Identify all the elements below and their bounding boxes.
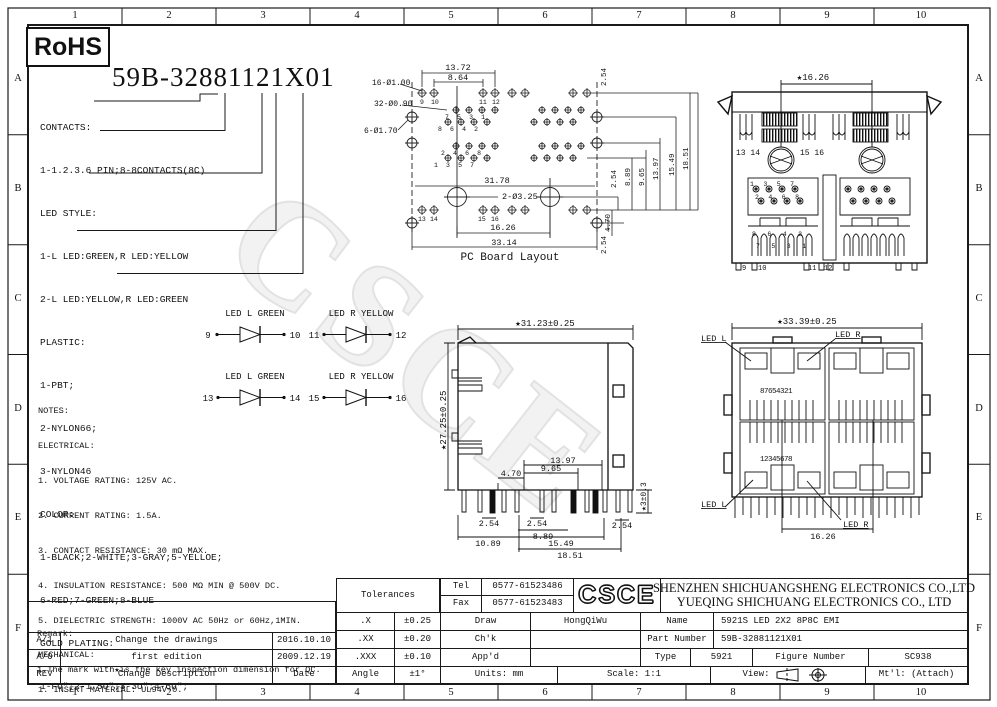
tol-x-label: .X (336, 612, 395, 631)
tel-label: Tel (440, 578, 482, 596)
svg-text:2.54: 2.54 (611, 169, 619, 188)
bottom-view-drawing: ★16.26 13 14 15 16 1 3 5 7 2 4 6 8 8 6 4… (700, 60, 970, 290)
svg-text:33.14: 33.14 (491, 238, 517, 248)
svg-text:LED L GREEN: LED L GREEN (225, 309, 284, 319)
svg-text:6-Ø1.70: 6-Ø1.70 (364, 127, 398, 136)
electrical-label: ELECTRICAL: (38, 441, 353, 453)
pcb-layout-drawing: 13.72 8.64 16-Ø1.00 32-Ø0.90 6-Ø1.70 31.… (360, 58, 750, 270)
tol-xxx-label: .XXX (336, 648, 395, 667)
tel-value: 0577-61523486 (481, 578, 574, 596)
svg-text:LED R YELLOW: LED R YELLOW (329, 372, 394, 382)
svg-text:★31.23±0.25: ★31.23±0.25 (515, 319, 574, 329)
svg-text:8 6 4 2: 8 6 4 2 (752, 231, 802, 238)
front-view-drawing: ★33.39±0.25 LED L LED R 87654321 1234567… (695, 315, 975, 565)
csce-logo: CSCE (573, 578, 661, 613)
tol-xx-value: ±0.20 (394, 630, 441, 649)
rev-header-desc: Change Description (60, 666, 273, 684)
svg-text:31.78: 31.78 (484, 176, 510, 186)
check-value (530, 630, 641, 649)
company-block: SHENZHEN SHICHUANGSHENG ELECTRONICS CO.,… (660, 578, 968, 613)
rev-id-2: A/0 (28, 649, 61, 667)
svg-text:★27.25±0.25: ★27.25±0.25 (439, 391, 449, 450)
led-diagram-2: LED R YELLOW 11 12 (306, 303, 416, 349)
svg-text:15: 15 (478, 216, 486, 223)
rev-header-date: Date (272, 666, 336, 684)
svg-text:2.54: 2.54 (612, 521, 632, 531)
svg-text:87654321: 87654321 (760, 388, 793, 396)
rev-date-2: 2009.12.19 (272, 649, 336, 667)
note-line: 1. VOLTAGE RATING: 125V AC. (38, 476, 353, 488)
svg-text:32-Ø0.90: 32-Ø0.90 (374, 100, 413, 109)
svg-text:14: 14 (430, 216, 438, 223)
svg-text:11: 11 (479, 99, 487, 106)
svg-text:8.64: 8.64 (448, 73, 468, 83)
view-cell: View: (710, 666, 866, 684)
draw-label: Draw (440, 612, 531, 631)
fax-label: Fax (440, 595, 482, 613)
check-label: Ch'k (440, 630, 531, 649)
svg-text:16: 16 (491, 216, 499, 223)
svg-text:9: 9 (742, 265, 746, 273)
company-line-1: SHENZHEN SHICHUANGSHENG ELECTRONICS CO.,… (653, 582, 975, 595)
tol-xxx-value: ±0.10 (394, 648, 441, 667)
svg-text:9.65: 9.65 (541, 464, 561, 474)
tol-angle-value: ±1° (394, 666, 441, 684)
figure-number-value: SC938 (868, 648, 968, 667)
csce-logo-text: CSCE (578, 582, 655, 608)
svg-text:LED L: LED L (701, 334, 727, 344)
rev-id-1: A/1 (28, 632, 61, 650)
fax-value: 0577-61523483 (481, 595, 574, 613)
contacts-opt-1: 1-1.2.3.6 PIN;8-8CONTACTS(8C) (40, 164, 222, 178)
svg-text:2.54: 2.54 (527, 519, 547, 529)
svg-text:7 5 3 1: 7 5 3 1 (445, 114, 485, 121)
svg-text:★33.39±0.25: ★33.39±0.25 (777, 317, 836, 327)
svg-text:LED R: LED R (843, 520, 869, 530)
svg-text:16-Ø1.00: 16-Ø1.00 (372, 79, 411, 88)
material-cell: Mt'l: (Attach) (865, 666, 968, 684)
part-number-value: 59B-32881121X01 (713, 630, 968, 649)
note-line: 4. INSULATION RESISTANCE: 500 MΩ MIN @ 5… (38, 581, 353, 593)
svg-text:12345678: 12345678 (760, 456, 792, 464)
svg-text:1 3 5 7: 1 3 5 7 (750, 181, 794, 188)
rev-header-rev: REV (28, 666, 61, 684)
svg-text:10: 10 (431, 99, 439, 106)
tolerances-header: Tolerances (336, 578, 440, 613)
draw-value: HongQiWu (530, 612, 641, 631)
tol-angle-label: Angle (336, 666, 395, 684)
svg-text:16.26: 16.26 (490, 223, 516, 233)
svg-text:9.65: 9.65 (639, 167, 647, 186)
svg-text:LED R: LED R (835, 330, 861, 340)
tol-x-value: ±0.25 (394, 612, 441, 631)
svg-text:PC Board Layout: PC Board Layout (460, 252, 559, 264)
led-opt-1: 1-L LED:GREEN,R LED:YELLOW (40, 250, 222, 264)
svg-text:16: 16 (396, 394, 407, 404)
name-label: Name (640, 612, 714, 631)
svg-text:7 5 3 1: 7 5 3 1 (756, 243, 806, 250)
svg-text:2.54: 2.54 (601, 235, 609, 254)
type-value: 5921 (690, 648, 753, 667)
svg-text:2-Ø3.25: 2-Ø3.25 (502, 192, 538, 202)
svg-text:LED L GREEN: LED L GREEN (225, 372, 284, 382)
notes-title: NOTES: (38, 406, 353, 418)
svg-text:LED L: LED L (701, 500, 727, 510)
svg-text:12: 12 (396, 331, 407, 341)
svg-text:10: 10 (758, 265, 766, 273)
note-line: 2. CURRENT RATING: 1.5A. (38, 511, 353, 523)
svg-text:12: 12 (492, 99, 500, 106)
svg-text:★16.26: ★16.26 (797, 73, 829, 83)
scale-cell: Scale: 1:1 (557, 666, 711, 684)
led-style-label: LED STYLE: (40, 207, 222, 221)
svg-text:4.70: 4.70 (605, 213, 613, 232)
rohs-logo: RoHS (26, 27, 110, 67)
svg-text:9: 9 (205, 331, 210, 341)
svg-text:13: 13 (418, 216, 426, 223)
svg-text:13.97: 13.97 (653, 157, 661, 180)
approved-value (530, 648, 641, 667)
svg-text:13.72: 13.72 (445, 63, 471, 73)
name-value: 5921S LED 2X2 8P8C EMI (713, 612, 968, 631)
contacts-label: CONTACTS: (40, 121, 222, 135)
part-number-title: 59B-32881121X01 (112, 62, 335, 93)
view-label: View: (742, 670, 769, 679)
svg-text:2.54: 2.54 (601, 67, 609, 86)
svg-text:18.51: 18.51 (683, 147, 691, 170)
svg-text:15.49: 15.49 (669, 153, 677, 176)
svg-text:4.70: 4.70 (501, 469, 521, 479)
svg-text:8.89: 8.89 (625, 168, 633, 186)
remark-box: Remark: 1.The mark with★is the key inspe… (28, 601, 336, 633)
drawing-sheet: CSCE 1 2 3 4 5 6 7 8 (0, 0, 997, 707)
svg-text:2 4 6 8: 2 4 6 8 (755, 194, 799, 201)
third-angle-projection-icon (776, 668, 834, 682)
svg-text:LED R YELLOW: LED R YELLOW (329, 309, 394, 319)
tol-xx-label: .XX (336, 630, 395, 649)
svg-text:1 3 5 7: 1 3 5 7 (434, 162, 474, 169)
svg-text:12: 12 (824, 265, 832, 273)
note-line: 3. CONTACT RESISTANCE: 30 mΩ MAX. (38, 546, 353, 558)
svg-text:13 14: 13 14 (736, 149, 760, 158)
svg-text:15.49: 15.49 (548, 539, 574, 549)
figure-number-label: Figure Number (752, 648, 869, 667)
led-diagram-1: LED L GREEN 9 10 (200, 303, 310, 349)
svg-text:9: 9 (420, 99, 424, 106)
svg-text:11: 11 (309, 331, 320, 341)
svg-text:2.54: 2.54 (479, 519, 499, 529)
svg-text:★3±0.3: ★3±0.3 (640, 482, 649, 511)
svg-text:11: 11 (808, 265, 816, 273)
svg-text:18.51: 18.51 (557, 551, 583, 561)
plastic-label: PLASTIC: (40, 336, 222, 350)
svg-text:15 16: 15 16 (800, 149, 824, 158)
approved-label: App'd (440, 648, 531, 667)
svg-text:8 6 4 2: 8 6 4 2 (438, 126, 478, 133)
svg-text:16.26: 16.26 (810, 532, 836, 542)
units-cell: Units: mm (440, 666, 558, 684)
rev-desc-2: first edition (60, 649, 273, 667)
led-opt-2: 2-L LED:YELLOW,R LED:GREEN (40, 293, 222, 307)
part-number-label: Part Number (640, 630, 714, 649)
rev-desc-1: Change the drawings (60, 632, 273, 650)
rev-date-1: 2016.10.10 (272, 632, 336, 650)
company-line-2: YUEQING SHICHUANG ELECTRONICS CO., LTD (677, 596, 952, 609)
side-view-drawing: ★31.23±0.25 ★27.25±0.25 ★3±0.3 13.97 9.6… (440, 315, 700, 563)
svg-text:10.89: 10.89 (475, 539, 501, 549)
svg-text:2 4 6 8: 2 4 6 8 (441, 150, 481, 157)
type-label: Type (640, 648, 691, 667)
svg-text:10: 10 (290, 331, 301, 341)
